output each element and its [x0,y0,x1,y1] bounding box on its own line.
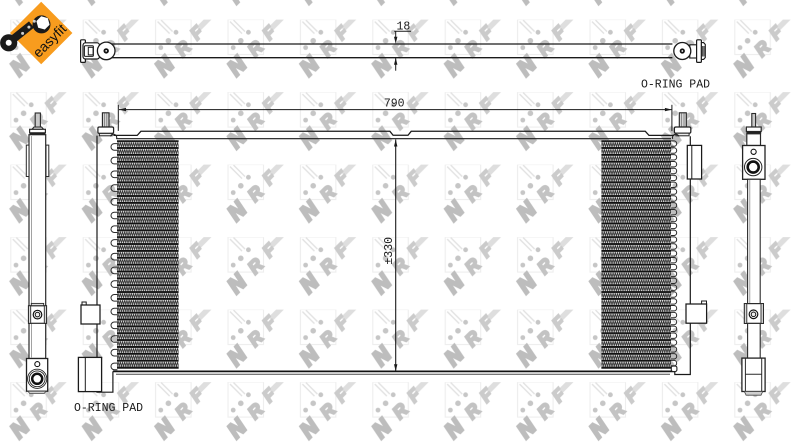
svg-text:±330: ±330 [383,237,396,265]
svg-text:790: 790 [384,98,405,111]
svg-text:O-RING PAD: O-RING PAD [74,402,143,415]
svg-text:18: 18 [396,20,410,33]
svg-text:O-RING PAD: O-RING PAD [641,78,710,91]
